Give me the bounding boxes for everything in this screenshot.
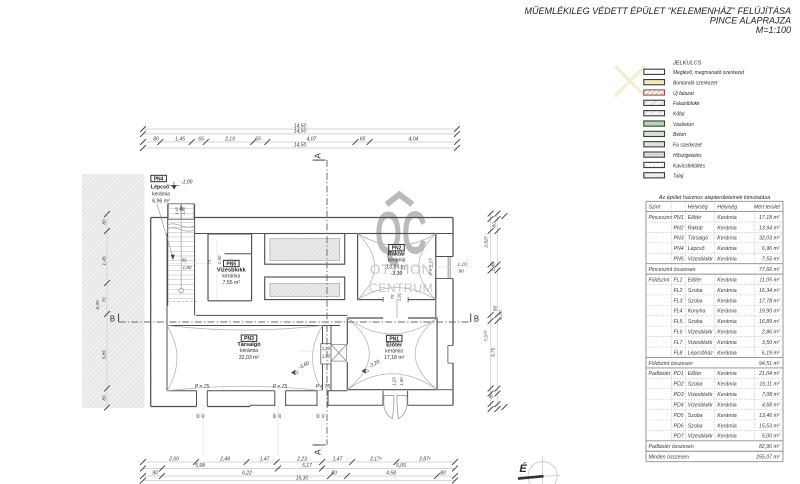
svg-text:16,89 m²: 16,89 m² [759, 319, 780, 325]
svg-text:Kerámia: Kerámia [717, 246, 736, 252]
svg-text:Mért terület: Mért terület [754, 205, 781, 211]
svg-text:6,96 m²: 6,96 m² [152, 198, 170, 204]
svg-text:80: 80 [102, 395, 108, 401]
svg-text:Vasbeton: Vasbeton [673, 122, 694, 128]
svg-text:Bontandó szerkezet: Bontandó szerkezet [673, 80, 718, 86]
svg-text:11,05 m²: 11,05 m² [759, 277, 779, 283]
svg-text:Kerámia: Kerámia [717, 434, 736, 440]
svg-text:Szoba: Szoba [688, 423, 703, 429]
svg-text:75: 75 [207, 259, 212, 265]
svg-text:13,46 m²: 13,46 m² [759, 413, 780, 419]
svg-text:1,23: 1,23 [392, 377, 397, 386]
svg-text:MŰEMLÉKILEG VÉDETT ÉPÜLET "KEL: MŰEMLÉKILEG VÉDETT ÉPÜLET "KELEMENHÁZ" F… [525, 6, 791, 16]
svg-text:Földszint összesen: Földszint összesen [649, 361, 693, 367]
svg-text:PD7: PD7 [674, 434, 685, 440]
svg-text:Raktár: Raktár [688, 225, 704, 231]
svg-text:21,04 m²: 21,04 m² [758, 371, 780, 377]
svg-text:A: A [312, 449, 322, 455]
svg-text:2,86 m²: 2,86 m² [761, 330, 780, 336]
svg-text:94,51 m²: 94,51 m² [759, 361, 780, 367]
svg-text:6,00: 6,00 [95, 300, 101, 310]
svg-text:Vizesblokk: Vizesblokk [688, 330, 713, 336]
svg-text:Az épület hasznos alapterülete: Az épület hasznos alapterületeinek kimut… [658, 195, 770, 201]
svg-text:Padlástér: Padlástér [649, 371, 671, 377]
svg-text:Új falazat: Új falazat [673, 90, 694, 97]
svg-text:P = 1,27: P = 1,27 [429, 258, 434, 276]
svg-text:Vizesblokk: Vizesblokk [688, 340, 713, 346]
svg-text:B: B [474, 314, 479, 323]
svg-text:1,45: 1,45 [491, 262, 497, 272]
svg-text:2,19: 2,19 [224, 136, 235, 142]
svg-text:6,96 m²: 6,96 m² [762, 246, 780, 252]
svg-text:A: A [312, 153, 322, 159]
svg-text:80: 80 [492, 222, 498, 228]
svg-text:FL8: FL8 [674, 350, 683, 356]
svg-text:Előtér: Előtér [688, 371, 702, 377]
svg-text:kerámia: kerámia [152, 191, 170, 197]
svg-text:PD5: PD5 [674, 413, 684, 419]
svg-text:-1,00: -1,00 [181, 180, 193, 186]
svg-text:PD6: PD6 [674, 423, 684, 429]
svg-text:65: 65 [360, 136, 366, 142]
svg-text:Konyha: Konyha [688, 309, 706, 315]
svg-text:JELKULCS: JELKULCS [672, 61, 702, 67]
svg-text:2,60: 2,60 [168, 456, 179, 462]
svg-text:16,11 m²: 16,11 m² [759, 382, 779, 388]
svg-text:Lépcsőház: Lépcsőház [688, 350, 713, 356]
svg-text:FL4: FL4 [674, 309, 683, 315]
svg-text:P = 75: P = 75 [273, 384, 288, 390]
svg-text:kerámia: kerámia [222, 274, 240, 280]
svg-text:77,66 m²: 77,66 m² [759, 267, 780, 273]
svg-text:6,19 m²: 6,19 m² [762, 350, 780, 356]
svg-text:Kavicsfeltöltés: Kavicsfeltöltés [673, 163, 705, 169]
svg-text:Falazóblokk: Falazóblokk [673, 101, 700, 107]
svg-text:32,03 m²: 32,03 m² [759, 236, 780, 242]
svg-text:255,07 m²: 255,07 m² [755, 455, 780, 461]
svg-text:40: 40 [321, 413, 326, 418]
svg-text:1,45: 1,45 [174, 206, 179, 215]
svg-text:Helyiség: Helyiség [717, 205, 737, 211]
svg-text:Pinceszint összesen: Pinceszint összesen [649, 267, 696, 273]
svg-text:-3,30: -3,30 [391, 271, 403, 277]
svg-text:4,04: 4,04 [409, 136, 419, 142]
svg-text:Vizesblokk: Vizesblokk [688, 257, 713, 263]
svg-text:2,17⁵: 2,17⁵ [369, 456, 382, 462]
svg-text:15,53 m²: 15,53 m² [759, 423, 780, 429]
svg-text:Társalgó: Társalgó [688, 236, 708, 242]
svg-text:Szoba: Szoba [688, 413, 703, 419]
svg-text:Lépcső: Lépcső [688, 246, 705, 252]
svg-text:PN5: PN5 [226, 261, 236, 267]
svg-text:Kerámia: Kerámia [717, 288, 736, 294]
svg-text:Vizesblokk: Vizesblokk [688, 392, 713, 398]
svg-text:Kerámia: Kerámia [717, 340, 736, 346]
svg-text:PN1: PN1 [674, 215, 684, 221]
svg-text:Helyiség: Helyiség [688, 205, 708, 211]
svg-text:80: 80 [153, 136, 159, 142]
svg-text:3,50 m²: 3,50 m² [762, 340, 780, 346]
svg-text:Padlástér összesen: Padlástér összesen [649, 444, 694, 450]
svg-text:Vizesblokk: Vizesblokk [688, 434, 713, 440]
svg-text:70: 70 [102, 297, 108, 303]
svg-text:PN2: PN2 [392, 246, 402, 252]
svg-text:PN3: PN3 [244, 336, 254, 342]
svg-text:82,90 m²: 82,90 m² [759, 444, 780, 450]
svg-text:80: 80 [102, 219, 108, 225]
svg-text:Kerámia: Kerámia [717, 350, 736, 356]
svg-text:5,17: 5,17 [302, 463, 312, 469]
svg-text:Szoba: Szoba [688, 319, 703, 325]
svg-text:Kerámia: Kerámia [717, 371, 736, 377]
svg-text:3,75: 3,75 [491, 348, 497, 358]
svg-text:7,55 m²: 7,55 m² [762, 257, 780, 263]
svg-text:FL2: FL2 [674, 288, 683, 294]
svg-text:Kerámia: Kerámia [717, 225, 736, 231]
svg-text:19,90 m²: 19,90 m² [759, 309, 780, 315]
svg-text:P = 75: P = 75 [316, 384, 331, 390]
svg-text:P = 75: P = 75 [195, 384, 210, 390]
svg-text:90: 90 [152, 471, 158, 477]
svg-text:5,00 m²: 5,00 m² [762, 434, 780, 440]
svg-text:PN3: PN3 [674, 236, 684, 242]
svg-text:80: 80 [493, 306, 499, 312]
svg-text:1,47: 1,47 [260, 456, 270, 462]
svg-text:17,78 m²: 17,78 m² [759, 298, 780, 304]
svg-text:90: 90 [458, 269, 464, 275]
svg-text:Szint: Szint [649, 205, 661, 211]
svg-text:Meglévő, megmaradó szerkezet: Meglévő, megmaradó szerkezet [673, 70, 745, 76]
svg-text:É: É [519, 462, 527, 475]
svg-text:PN4: PN4 [154, 176, 164, 182]
svg-text:2,23: 2,23 [296, 456, 307, 462]
svg-text:6,00: 6,00 [498, 310, 504, 320]
svg-text:5,98: 5,98 [195, 463, 205, 469]
svg-text:Kerámia: Kerámia [717, 298, 736, 304]
svg-text:2,48: 2,48 [219, 456, 230, 462]
svg-text:Kerámia: Kerámia [717, 392, 736, 398]
svg-text:PN5: PN5 [674, 257, 684, 263]
svg-text:FL7: FL7 [674, 340, 684, 346]
svg-text:13,94 m²: 13,94 m² [759, 225, 780, 231]
svg-text:Szoba: Szoba [688, 298, 703, 304]
svg-text:Fa szerkezet: Fa szerkezet [673, 143, 702, 149]
svg-text:7,07⁵: 7,07⁵ [484, 330, 490, 341]
svg-text:kerámia: kerámia [385, 349, 403, 355]
svg-text:Lépcső: Lépcső [151, 184, 169, 190]
svg-text:80: 80 [440, 471, 446, 477]
svg-text:PN2: PN2 [674, 225, 684, 231]
svg-text:FL6: FL6 [674, 330, 683, 336]
svg-text:4,58: 4,58 [386, 471, 396, 477]
svg-text:PD4: PD4 [674, 402, 684, 408]
svg-text:90: 90 [181, 258, 187, 263]
svg-text:1,60: 1,60 [399, 377, 404, 386]
svg-text:17,18 m²: 17,18 m² [384, 355, 405, 361]
svg-text:PD2: PD2 [674, 382, 684, 388]
svg-text:Kerámia: Kerámia [717, 215, 736, 221]
svg-text:Földszint: Földszint [649, 277, 670, 283]
svg-text:4,68 m²: 4,68 m² [762, 402, 780, 408]
svg-text:PD1: PD1 [674, 371, 684, 377]
svg-text:1,10: 1,10 [457, 262, 467, 268]
svg-text:15,30: 15,30 [296, 475, 309, 481]
svg-text:Előtér: Előtér [688, 277, 702, 283]
svg-text:Vizesblokk: Vizesblokk [688, 402, 713, 408]
svg-text:7,08 m²: 7,08 m² [762, 392, 780, 398]
svg-text:Kerámia: Kerámia [717, 236, 736, 242]
svg-text:FL1: FL1 [674, 277, 683, 283]
svg-text:7,55 m²: 7,55 m² [223, 280, 241, 286]
svg-text:14,50: 14,50 [294, 142, 307, 148]
svg-text:kerámia: kerámia [388, 258, 406, 264]
svg-text:Minden összesen: Minden összesen [649, 455, 689, 461]
svg-text:1,80: 1,80 [183, 265, 192, 270]
svg-text:PN1: PN1 [389, 336, 399, 342]
svg-text:Kerámia: Kerámia [717, 257, 736, 263]
svg-text:32,03 m²: 32,03 m² [239, 355, 260, 361]
svg-text:16,34 m²: 16,34 m² [759, 288, 780, 294]
svg-text:Előtér: Előtér [688, 215, 702, 221]
svg-text:Kerámia: Kerámia [717, 319, 736, 325]
svg-text:PD3: PD3 [674, 392, 684, 398]
svg-text:Kerámia: Kerámia [717, 402, 736, 408]
svg-text:14,50: 14,50 [294, 128, 307, 134]
svg-text:M=1:100: M=1:100 [756, 25, 791, 35]
svg-text:1,45: 1,45 [102, 256, 108, 266]
svg-text:3,85: 3,85 [102, 350, 108, 360]
svg-text:5,05: 5,05 [396, 463, 406, 469]
svg-text:FL3: FL3 [674, 298, 683, 304]
svg-text:Kerámia: Kerámia [717, 413, 736, 419]
svg-text:1,20: 1,20 [322, 346, 331, 351]
svg-text:65: 65 [198, 136, 204, 142]
svg-text:Szoba: Szoba [688, 382, 703, 388]
svg-text:Kerámia: Kerámia [717, 277, 736, 283]
svg-text:1,91: 1,91 [397, 293, 402, 301]
svg-text:2,87⁵: 2,87⁵ [418, 456, 431, 462]
svg-text:1,80: 1,80 [181, 206, 186, 215]
svg-text:Szoba: Szoba [688, 288, 703, 294]
svg-text:65: 65 [255, 136, 261, 142]
svg-text:Beton: Beton [673, 132, 686, 138]
svg-text:6,22: 6,22 [242, 471, 252, 477]
svg-text:Kőfal: Kőfal [673, 112, 685, 118]
svg-text:Kerámia: Kerámia [717, 423, 736, 429]
svg-text:Talaj: Talaj [673, 174, 684, 180]
svg-text:FL5: FL5 [674, 319, 683, 325]
svg-text:75: 75 [390, 294, 395, 299]
svg-text:Kerámia: Kerámia [717, 309, 736, 315]
svg-text:Hőszigetelés: Hőszigetelés [673, 153, 702, 159]
svg-text:80: 80 [489, 393, 495, 399]
svg-text:1,45: 1,45 [175, 136, 185, 142]
svg-text:2,52⁵: 2,52⁵ [484, 236, 490, 248]
svg-text:1,47: 1,47 [333, 456, 343, 462]
svg-text:B: B [110, 314, 115, 323]
svg-text:1,90: 1,90 [322, 354, 331, 359]
svg-text:Kerámia: Kerámia [717, 382, 736, 388]
svg-text:4,07: 4,07 [307, 136, 317, 142]
svg-text:Kerámia: Kerámia [717, 330, 736, 336]
svg-text:Pinceszint: Pinceszint [649, 215, 673, 221]
svg-text:PN4: PN4 [674, 246, 684, 252]
svg-text:1,90: 1,90 [217, 255, 222, 264]
svg-text:kerámia: kerámia [240, 348, 258, 354]
svg-text:17,18 m²: 17,18 m² [759, 215, 780, 221]
